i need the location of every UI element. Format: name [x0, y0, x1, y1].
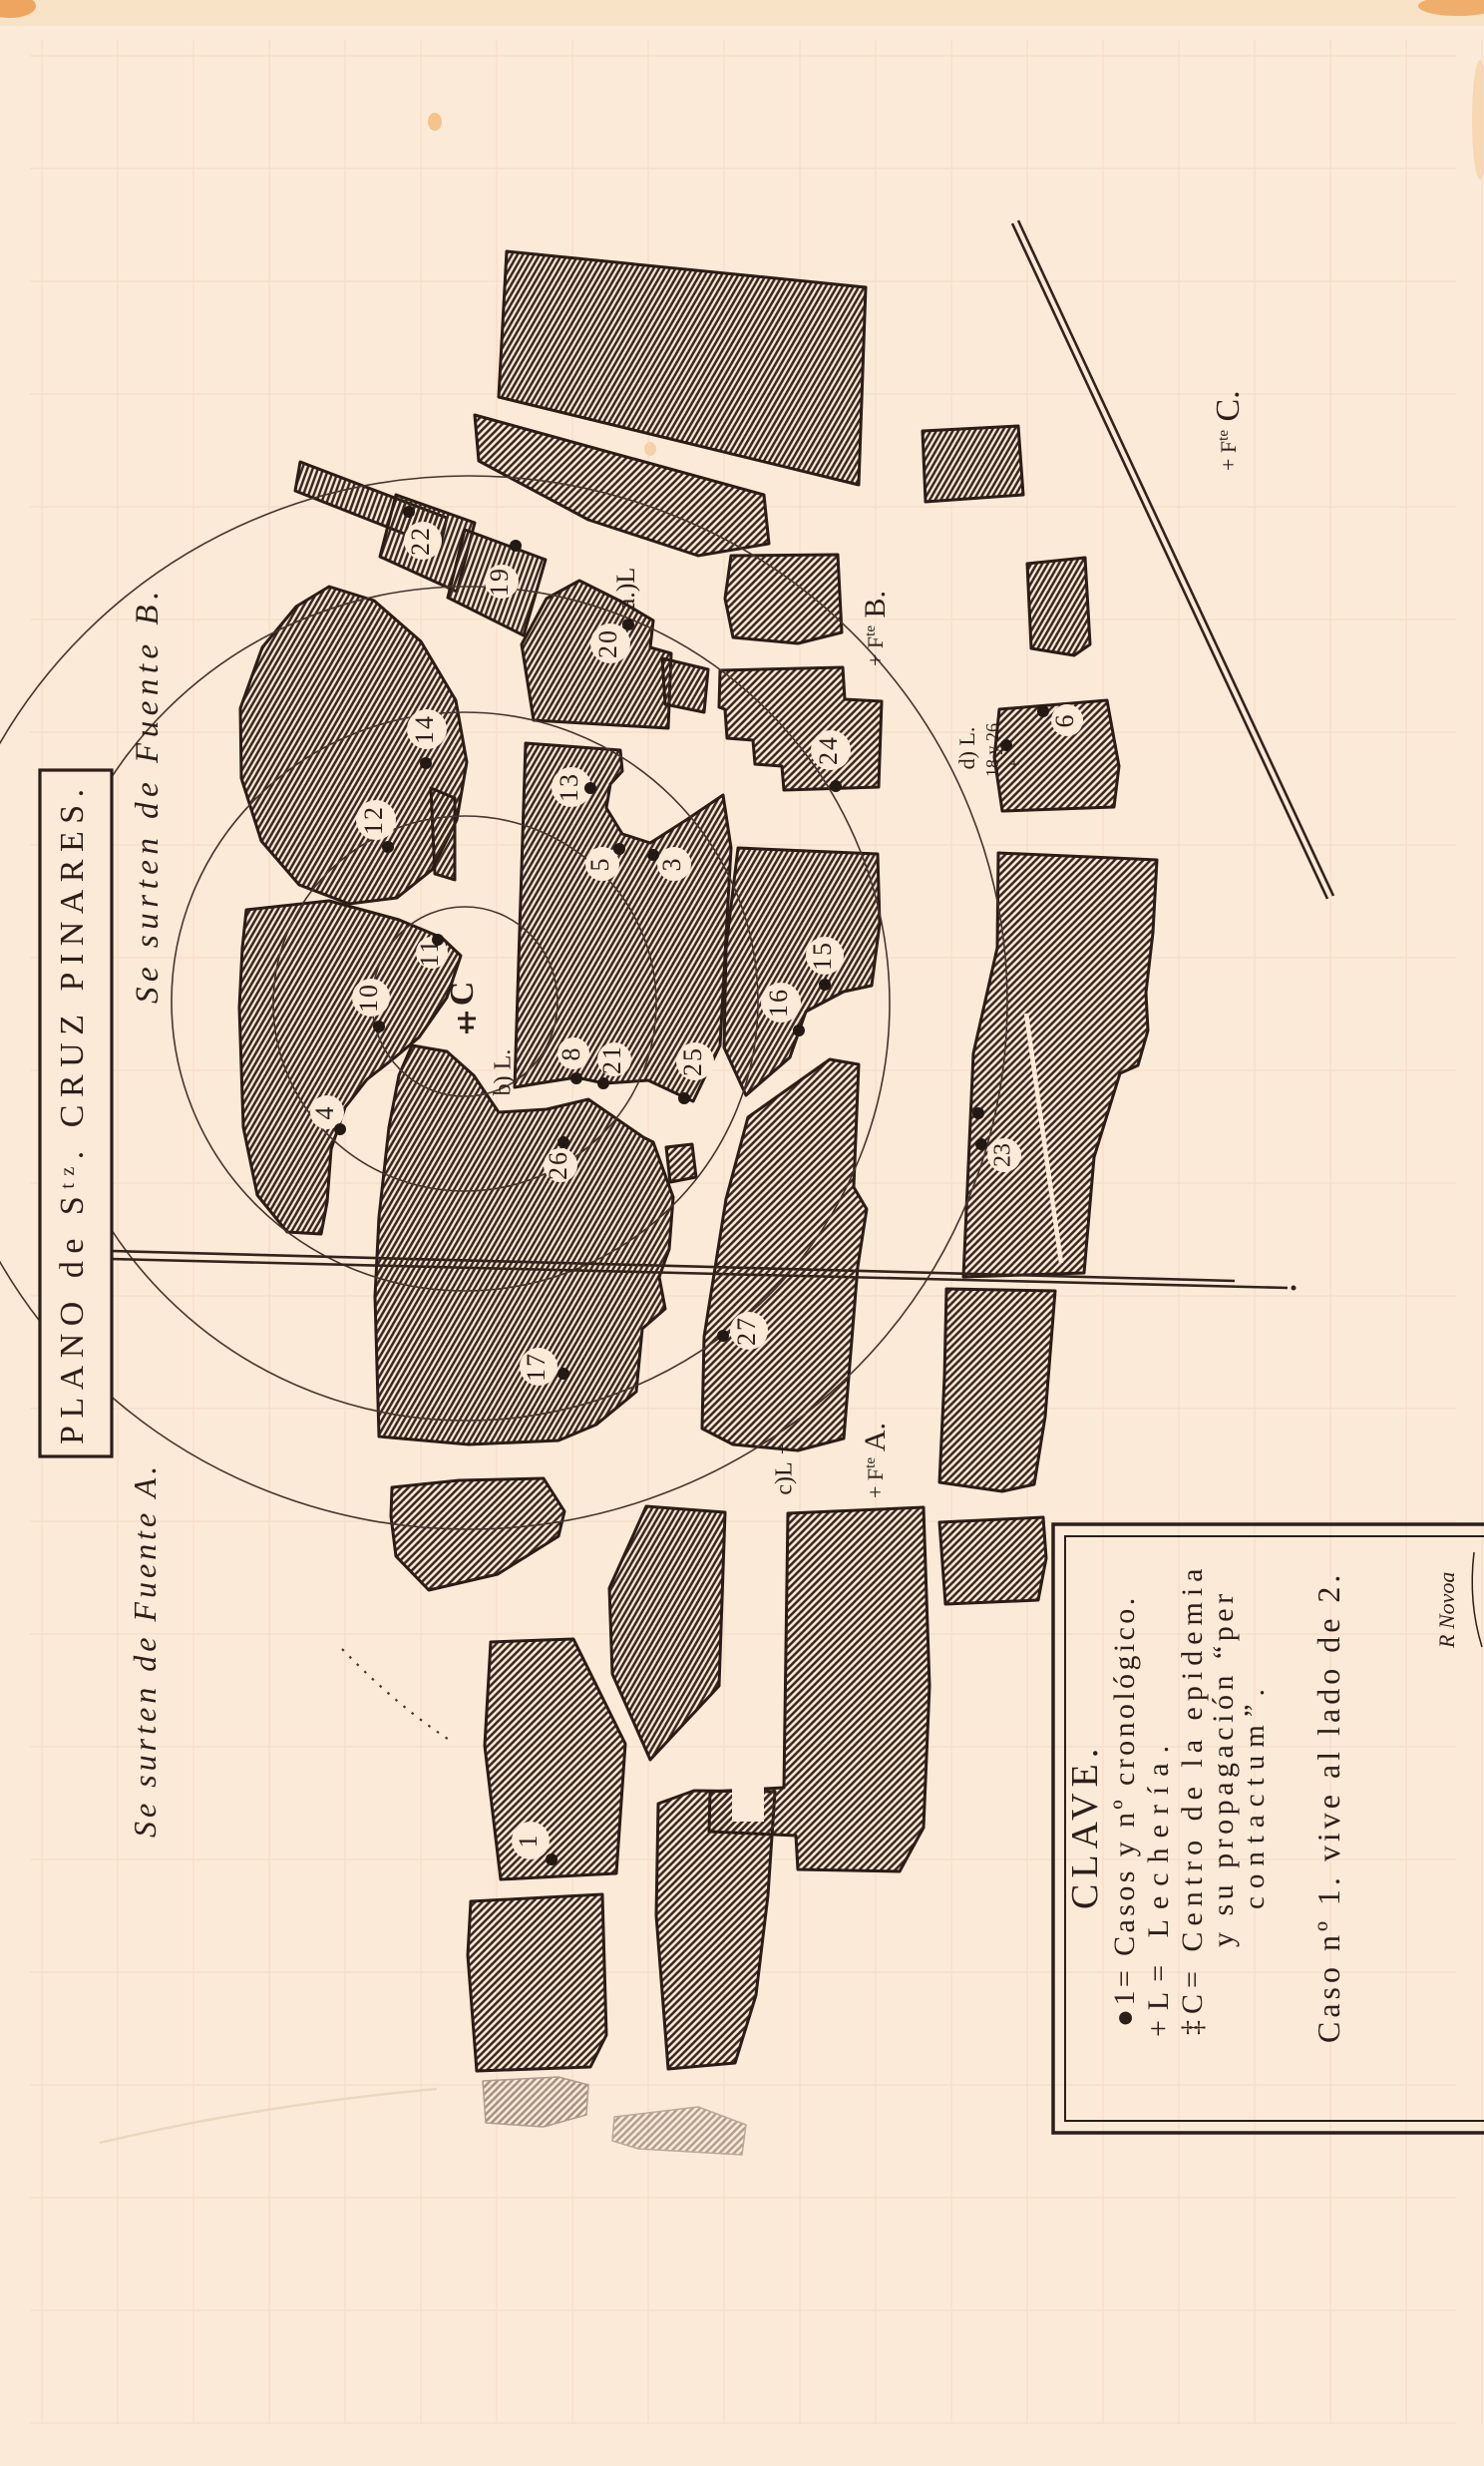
svg-text:6: 6	[1050, 713, 1079, 728]
svg-text:1: 1	[514, 1834, 543, 1849]
svg-text:26: 26	[544, 1150, 572, 1180]
svg-text:4: 4	[310, 1105, 339, 1120]
svg-text:10: 10	[354, 983, 383, 1013]
svg-text:●1= Casos y nº cronológico.: ●1= Casos y nº cronológico.	[1108, 1594, 1141, 2027]
svg-text:b) L.: b) L.	[491, 1049, 517, 1096]
svg-text:21: 21	[597, 1044, 626, 1074]
svg-text:24: 24	[814, 735, 843, 765]
svg-text:17: 17	[522, 1352, 551, 1382]
svg-text:+: +	[770, 1442, 795, 1454]
svg-text:y su propagación “per: y su propagación “per	[1207, 1589, 1240, 1947]
svg-text:CLAVE.: CLAVE.	[1064, 1743, 1106, 1909]
svg-text:Se surten de Fuente B.: Se surten de Fuente B.	[130, 586, 166, 1004]
svg-text:d) L.: d) L.	[954, 727, 979, 770]
svg-text:8: 8	[556, 1046, 585, 1061]
svg-text:5: 5	[585, 857, 614, 872]
svg-text:C: C	[444, 982, 481, 1007]
svg-text:R Novoa: R Novoa	[1434, 1572, 1459, 1649]
svg-text:15: 15	[808, 941, 837, 971]
svg-text:a.)L: a.)L	[611, 568, 640, 611]
svg-text:PLANO de Stz. CRUZ PINARES.: PLANO de Stz. CRUZ PINARES.	[54, 781, 91, 1444]
svg-text:14: 14	[410, 714, 439, 744]
svg-text:‡C= Centro de la epidemia: ‡C= Centro de la epidemia	[1176, 1563, 1209, 2036]
svg-text:25: 25	[678, 1046, 707, 1076]
svg-text:Caso nº 1. vive al lado de 2.: Caso nº 1. vive al lado de 2.	[1310, 1571, 1346, 2043]
svg-text:contactum”.: contactum”.	[1239, 1681, 1271, 1909]
svg-text:3: 3	[657, 857, 686, 872]
svg-text:18 y 26: 18 y 26	[982, 723, 1002, 777]
svg-text:23: 23	[990, 1143, 1016, 1167]
svg-text:19: 19	[485, 567, 514, 597]
svg-text:13: 13	[555, 772, 583, 802]
svg-text:27: 27	[732, 1316, 761, 1346]
svg-text:16: 16	[764, 988, 793, 1018]
svg-text:c)L: c)L	[772, 1461, 798, 1494]
svg-text:Se surten de Fuente A.: Se surten de Fuente A.	[127, 1462, 163, 1838]
svg-text:+L= Lechería.: +L= Lechería.	[1142, 1736, 1175, 2037]
svg-text:12: 12	[359, 805, 388, 835]
svg-text:20: 20	[593, 628, 622, 658]
svg-text:+: +	[1004, 758, 1026, 769]
svg-text:22: 22	[406, 526, 435, 556]
